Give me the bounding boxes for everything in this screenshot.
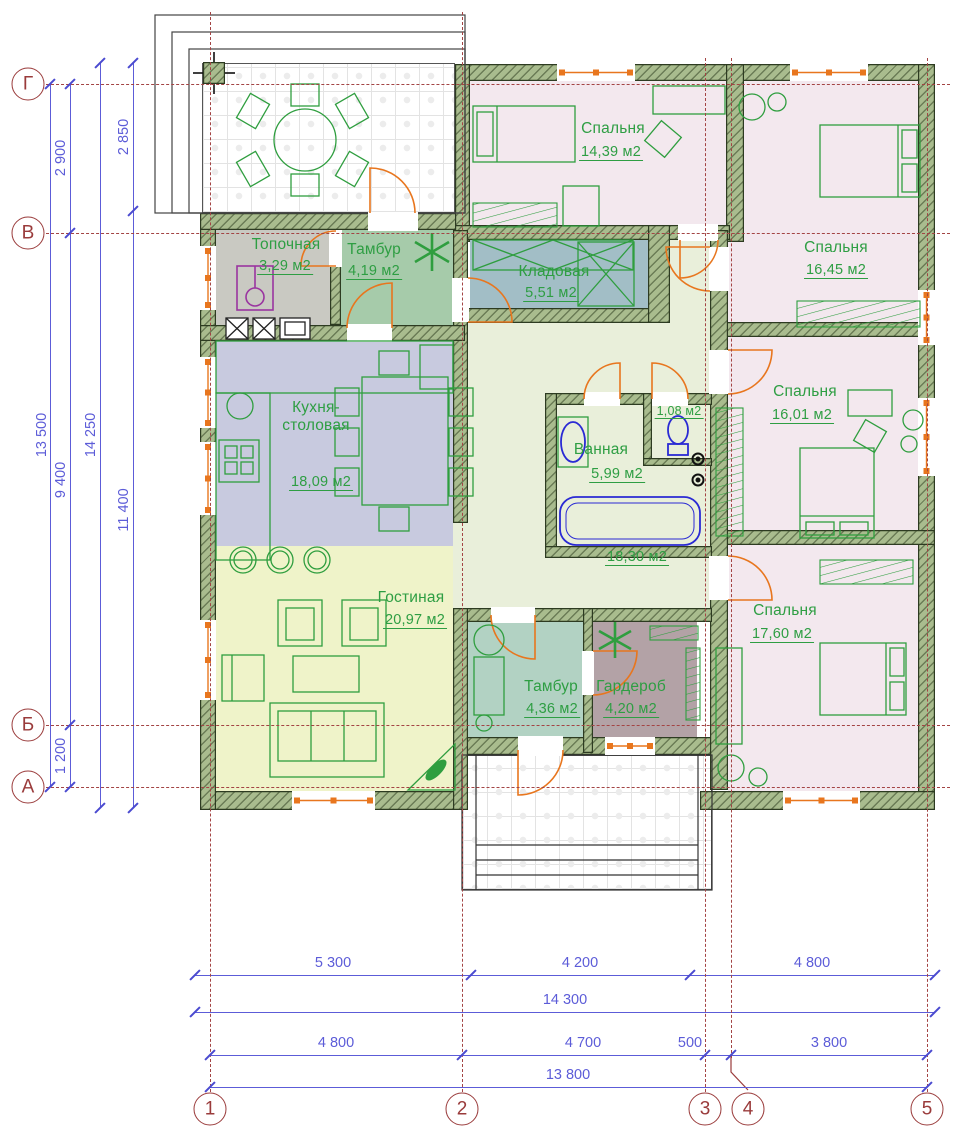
porch-steps: [462, 755, 712, 890]
room-label: Спальня: [753, 602, 817, 620]
door[interactable]: [347, 283, 392, 328]
axis-line-2: [462, 12, 463, 1092]
axis-line-5: [927, 58, 928, 1092]
dim-label: 13 800: [546, 1067, 590, 1083]
door-opening: [709, 556, 729, 600]
terrace-steps: [155, 15, 465, 213]
room-area: 1,08 м2: [655, 404, 704, 419]
axis-line-1: [210, 12, 211, 1092]
door-opening: [329, 230, 342, 267]
axis-bubble-g: Г: [12, 68, 45, 101]
room-area: 4,20 м2: [603, 701, 659, 718]
window: [200, 357, 216, 428]
room-label: Спальня: [581, 120, 645, 138]
room-area: 17,60 м2: [750, 626, 814, 643]
dim-label: 2 850: [116, 119, 132, 155]
door-opening: [368, 212, 418, 231]
door[interactable]: [728, 556, 772, 600]
built-in-wardrobe: [797, 301, 920, 327]
floor-plan: Топочная 3,29 м2 Тамбур 4,19 м2 Кладовая…: [0, 0, 966, 1134]
room-label: Ванная: [574, 441, 628, 459]
room-area: 5,99 м2: [589, 466, 645, 483]
axis-line-v: [46, 233, 950, 234]
axis-bubble-b: Б: [12, 709, 45, 742]
built-in-wardrobe: [820, 560, 913, 584]
room-area: 18,09 м2: [289, 474, 353, 491]
tambur-top-plant: [415, 233, 449, 271]
wardrobe-plant: [599, 622, 631, 658]
bathtub: [560, 497, 700, 545]
door-opening: [582, 651, 594, 695]
room-area: 14,39 м2: [579, 144, 643, 161]
door[interactable]: [518, 750, 563, 795]
door-opening: [709, 247, 729, 291]
dim-label: 5 300: [315, 955, 351, 971]
bedroom-2-furniture: [739, 93, 920, 197]
bedroom-4-furniture: [716, 643, 906, 786]
axis-4-leader: [731, 1056, 748, 1090]
built-in-wardrobe: [473, 203, 557, 227]
dim-label: 14 250: [83, 413, 99, 457]
room-area: 5,51 м2: [523, 285, 579, 302]
room-label: Топочная: [252, 236, 321, 254]
axis-bubble-2: 2: [446, 1093, 479, 1126]
window: [605, 737, 655, 755]
axis-bubble-a: А: [12, 771, 45, 804]
dim-label: 11 400: [116, 488, 132, 531]
built-in-wardrobe: [716, 408, 743, 536]
door-opening: [518, 736, 563, 756]
room-area: 18,30 м2: [605, 549, 669, 566]
door[interactable]: [728, 350, 772, 394]
door-opening: [584, 392, 620, 406]
door-opening: [709, 350, 729, 394]
window: [200, 246, 216, 310]
room-label: Спальня: [773, 383, 837, 401]
axis-line-4: [731, 58, 732, 1058]
axis-bubble-4: 4: [732, 1093, 765, 1126]
axis-line-3: [705, 58, 706, 1092]
door[interactable]: [370, 168, 415, 213]
window: [200, 442, 216, 515]
dim-label: 13 500: [34, 413, 50, 457]
door-opening: [347, 324, 392, 342]
axis-bubble-3: 3: [689, 1093, 722, 1126]
column-ticks: [193, 52, 235, 94]
room-label: Кухня-: [292, 399, 340, 417]
axis-line-g: [46, 84, 950, 85]
room-area: 20,97 м2: [383, 612, 447, 629]
room-area: 4,36 м2: [524, 701, 580, 718]
valves: [693, 454, 704, 486]
dim-label: 3 800: [811, 1035, 847, 1051]
window: [783, 791, 860, 810]
window: [200, 620, 216, 700]
window: [557, 64, 635, 81]
room-label: Тамбур: [347, 241, 401, 259]
built-in-wardrobe: [650, 626, 698, 640]
kitchen-furniture: [216, 341, 473, 573]
laundry-appliances: [226, 318, 310, 339]
door-opening: [491, 607, 535, 623]
dim-label: 4 200: [562, 955, 598, 971]
dim-label: 500: [678, 1035, 702, 1051]
door[interactable]: [468, 278, 512, 322]
dim-label: 4 800: [318, 1035, 354, 1051]
room-label: Гостиная: [378, 589, 445, 607]
terrace-table: [236, 84, 368, 196]
dim-label: 4 700: [565, 1035, 601, 1051]
room-area: 16,01 м2: [770, 407, 834, 424]
axis-line-a: [46, 787, 950, 788]
axis-bubble-5: 5: [911, 1093, 944, 1126]
room-area: 16,45 м2: [804, 262, 868, 279]
door-opening: [452, 278, 469, 322]
dim-label: 9 400: [53, 462, 69, 498]
room-label: Тамбур: [524, 678, 578, 696]
window: [292, 791, 375, 810]
dim-label: 14 300: [543, 992, 587, 1008]
built-in-wardrobe: [686, 648, 700, 720]
room-area: 4,19 м2: [346, 263, 402, 280]
room-label: Гардероб: [596, 678, 666, 696]
dim-label: 2 900: [53, 140, 69, 176]
axis-line-b: [46, 725, 950, 726]
window: [790, 64, 868, 81]
axis-bubble-v: В: [12, 217, 45, 250]
axis-bubble-1: 1: [194, 1093, 227, 1126]
room-area: 3,29 м2: [257, 258, 313, 275]
dim-label: 4 800: [794, 955, 830, 971]
room-label: Спальня: [804, 239, 868, 257]
room-label: столовая: [282, 417, 349, 435]
toilet: [668, 416, 688, 444]
dim-label: 1 200: [53, 738, 69, 774]
room-label: Кладовая: [518, 263, 589, 281]
